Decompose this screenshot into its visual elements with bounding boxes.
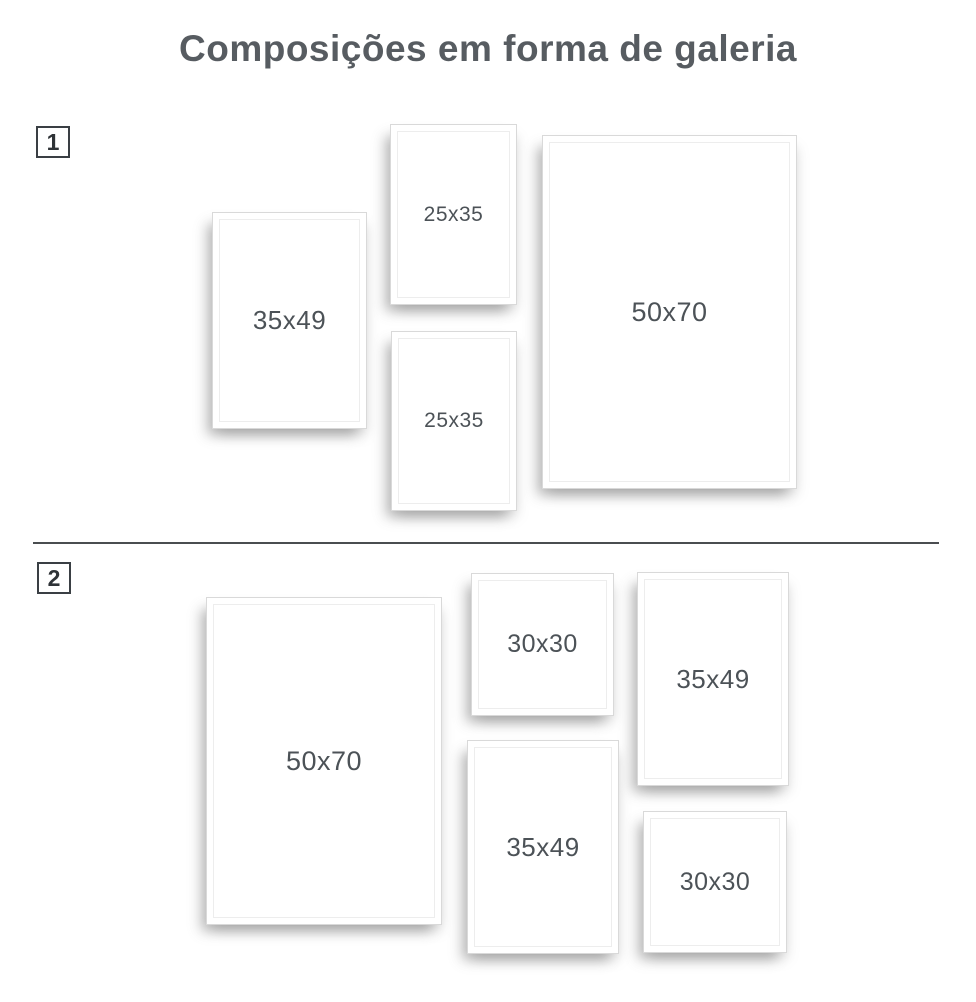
frame-size-label: 30x30	[507, 630, 578, 659]
composition-1-number-badge: 1	[36, 126, 70, 158]
frame-size-label: 35x49	[506, 832, 579, 863]
frame-25x35: 25x35	[390, 124, 517, 305]
frame-size-label: 50x70	[286, 746, 362, 777]
frame-size-label: 35x49	[253, 305, 326, 336]
composition-2-number-badge: 2	[37, 562, 71, 594]
frame-35x49: 35x49	[212, 212, 367, 429]
frame-30x30: 30x30	[471, 573, 614, 716]
frame-35x49: 35x49	[467, 740, 619, 954]
page-title: Composições em forma de galeria	[0, 28, 976, 70]
frame-35x49: 35x49	[637, 572, 789, 786]
frame-size-label: 25x35	[424, 203, 484, 227]
frame-25x35: 25x35	[391, 331, 517, 511]
gallery-compositions-diagram: Composições em forma de galeria 1 35x49 …	[0, 0, 976, 1002]
frame-size-label: 25x35	[424, 409, 484, 433]
frame-size-label: 30x30	[680, 868, 751, 897]
frame-size-label: 50x70	[631, 297, 707, 328]
frame-50x70: 50x70	[206, 597, 442, 925]
section-divider	[33, 542, 939, 544]
frame-30x30: 30x30	[643, 811, 787, 953]
frame-size-label: 35x49	[676, 664, 749, 695]
frame-50x70: 50x70	[542, 135, 797, 489]
